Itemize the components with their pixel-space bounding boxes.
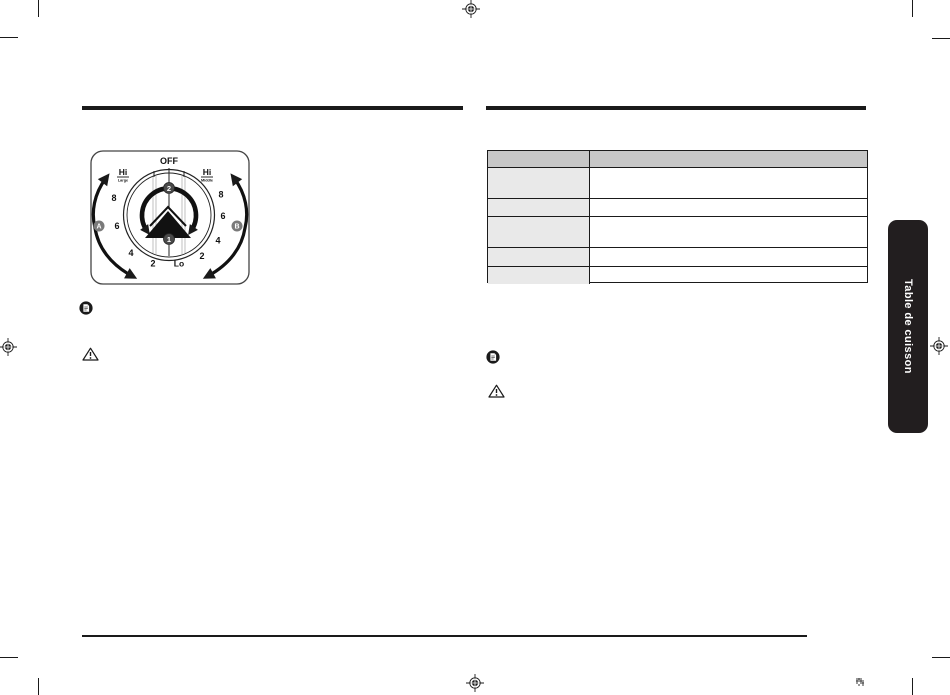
knob-hi-middle-label: Hi Middle — [201, 167, 213, 183]
table-row-label — [488, 199, 590, 217]
table-row-label — [488, 248, 590, 267]
table-cell — [590, 217, 867, 248]
warning-icon — [82, 347, 99, 361]
crop-mark-bottom-left-v — [38, 678, 39, 695]
svg-text:1: 1 — [167, 235, 171, 244]
knob-off-label: OFF — [160, 156, 178, 166]
crop-mark-top-right-h — [932, 38, 950, 39]
crop-mark-bottom-right-v — [912, 678, 913, 695]
side-tab-label: Table de cuisson — [902, 279, 914, 374]
note-icon — [79, 301, 93, 315]
table-cell — [590, 199, 867, 217]
step-1-badge: 1 — [164, 234, 175, 245]
knob-lo-label: Lo — [174, 259, 184, 269]
table-header-cell — [488, 151, 590, 168]
knob-diagram: 2 1 A B OFF Hi Large Hi Middle Lo — [90, 150, 250, 285]
registration-mark-left — [0, 338, 17, 356]
table-cell — [590, 168, 867, 199]
svg-text:Middle: Middle — [201, 179, 213, 183]
svg-text:2: 2 — [199, 251, 204, 261]
registration-mark-top — [462, 0, 480, 18]
svg-text:A: A — [96, 224, 101, 231]
burner-b-badge: B — [232, 221, 243, 232]
crop-mark-top-left-h — [0, 37, 18, 38]
registration-mark-bottom — [466, 674, 484, 692]
table-header-cell — [590, 151, 867, 168]
crop-mark-bottom-left-h — [0, 657, 18, 658]
table-cell — [590, 248, 867, 267]
warning-icon — [488, 384, 505, 398]
crop-mark-top-right-v — [912, 0, 913, 17]
svg-text:2: 2 — [150, 259, 155, 269]
print-mark-checker — [856, 678, 864, 686]
svg-text:2: 2 — [167, 184, 171, 193]
side-tab-table-de-cuisson: Table de cuisson — [888, 220, 928, 433]
svg-text:4: 4 — [128, 248, 133, 258]
svg-text:B: B — [234, 224, 239, 231]
left-section-rule — [82, 106, 463, 110]
step-2-badge: 2 — [164, 183, 175, 194]
svg-text:8: 8 — [218, 190, 223, 200]
svg-text:Large: Large — [118, 179, 128, 183]
manual-page: 2 1 A B OFF Hi Large Hi Middle Lo — [0, 0, 950, 695]
svg-text:6: 6 — [114, 221, 119, 231]
registration-mark-right — [930, 337, 948, 355]
table-row-label — [488, 267, 590, 284]
crop-mark-bottom-right-h — [932, 657, 950, 658]
svg-text:Hi: Hi — [119, 167, 128, 177]
svg-text:6: 6 — [220, 211, 225, 221]
table-row-label — [488, 217, 590, 248]
note-icon — [486, 350, 500, 364]
footer-rule — [82, 635, 807, 637]
right-section-rule — [486, 106, 866, 110]
burner-a-badge: A — [94, 221, 105, 232]
crop-mark-top-left-v — [38, 0, 39, 17]
svg-text:4: 4 — [215, 236, 220, 246]
svg-text:Hi: Hi — [203, 167, 212, 177]
svg-text:8: 8 — [111, 193, 116, 203]
knob-hi-large-label: Hi Large — [117, 167, 129, 183]
table-row-label — [488, 168, 590, 199]
settings-table — [487, 150, 868, 283]
table-cell — [590, 267, 867, 284]
